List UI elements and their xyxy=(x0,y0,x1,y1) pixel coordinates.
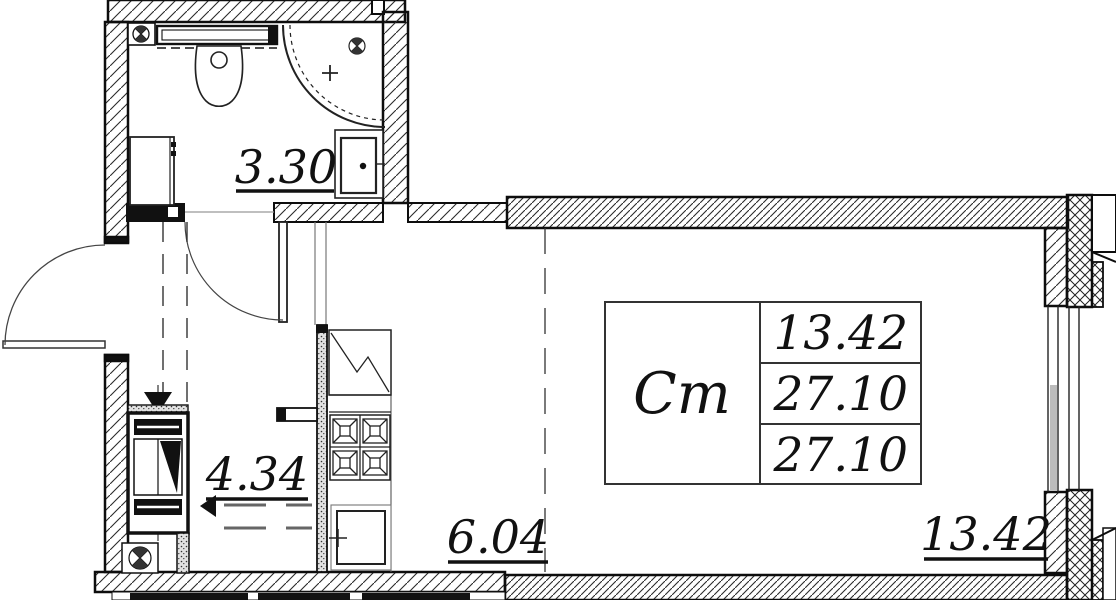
living-room: Ст 13.42 27.10 27.10 6.04 13.42 xyxy=(447,228,1052,572)
window-right xyxy=(1048,306,1079,492)
bathroom-wall-hinge-gap xyxy=(168,207,178,217)
entrance-door-swing-arc xyxy=(5,245,105,345)
wall-stub-hall-cap xyxy=(277,408,286,421)
bathroom-door-leaf xyxy=(279,222,287,322)
bathroom-door-swing-arc xyxy=(185,222,283,320)
insulation-right-upper xyxy=(1067,195,1092,307)
lower-unit-strip xyxy=(112,592,505,600)
fridge-symbol xyxy=(329,330,391,395)
wardrobe xyxy=(128,405,188,533)
insulation-right-upper-step xyxy=(1092,262,1103,307)
washbasin xyxy=(335,130,385,198)
burner-icon xyxy=(363,451,387,475)
kitchen-sink-symbol xyxy=(329,505,391,570)
wall-stub-small xyxy=(177,533,189,573)
wall-bathroom-right xyxy=(383,12,408,203)
living-zone-area-label: 13.42 xyxy=(920,507,1052,561)
kitchen-partition-cap xyxy=(316,325,328,333)
stove-symbol xyxy=(330,415,390,480)
washing-machine xyxy=(130,137,176,205)
hallway-area-label: 4.34 xyxy=(205,447,308,501)
floor-drain xyxy=(122,543,158,573)
floor-drain-icon xyxy=(129,547,151,569)
kitchen-zone-area-label: 6.04 xyxy=(447,510,549,564)
bathroom-wall-right-segment xyxy=(274,203,383,222)
wall-corridor-top xyxy=(408,203,507,222)
wall-bottom-left xyxy=(95,572,505,592)
entrance-door xyxy=(3,245,105,348)
corner-block-bottom-right xyxy=(1103,528,1116,600)
burner-icon xyxy=(333,419,357,443)
pillar-right-upper xyxy=(1045,228,1067,306)
wall-outer-top xyxy=(507,197,1068,228)
living-area-value: 13.42 xyxy=(773,306,908,361)
kitchen xyxy=(277,222,391,572)
wall-left-upper xyxy=(105,22,128,242)
entrance-door-leaf xyxy=(3,341,105,348)
area-without-balcony-value: 27.10 xyxy=(772,367,908,422)
corner-step-top-right xyxy=(1092,252,1116,262)
burner-icon xyxy=(363,419,387,443)
vent-box xyxy=(128,23,155,45)
corner-block-top-right xyxy=(1092,195,1116,252)
shower-tray xyxy=(283,25,385,127)
total-area-value: 27.10 xyxy=(772,428,908,483)
bathroom: 3.30 xyxy=(126,23,385,322)
insulation-right-lower xyxy=(1067,490,1092,600)
wall-cap-left-upper xyxy=(105,237,128,243)
wall-bottom-right xyxy=(505,575,1067,600)
kitchen-partition-wall xyxy=(317,325,327,572)
wall-left-lower xyxy=(105,355,128,572)
wall-cap-left-lower xyxy=(105,355,128,361)
floor-plan: 3.30 xyxy=(0,0,1116,600)
burner-icon xyxy=(333,451,357,475)
flush-button-icon xyxy=(211,52,227,68)
apartment-type-label: Ст xyxy=(633,361,731,427)
wall-top-bathroom xyxy=(108,0,405,22)
basin-drain-icon xyxy=(360,163,366,169)
window-glass-shade xyxy=(1050,385,1057,490)
insulation-right-lower-step xyxy=(1092,540,1103,600)
cistern-shelf xyxy=(157,26,277,48)
bathroom-area-label: 3.30 xyxy=(235,140,337,194)
shower-head-icon xyxy=(349,38,365,54)
toilet xyxy=(195,46,242,106)
shower-drain-icon xyxy=(322,65,338,81)
